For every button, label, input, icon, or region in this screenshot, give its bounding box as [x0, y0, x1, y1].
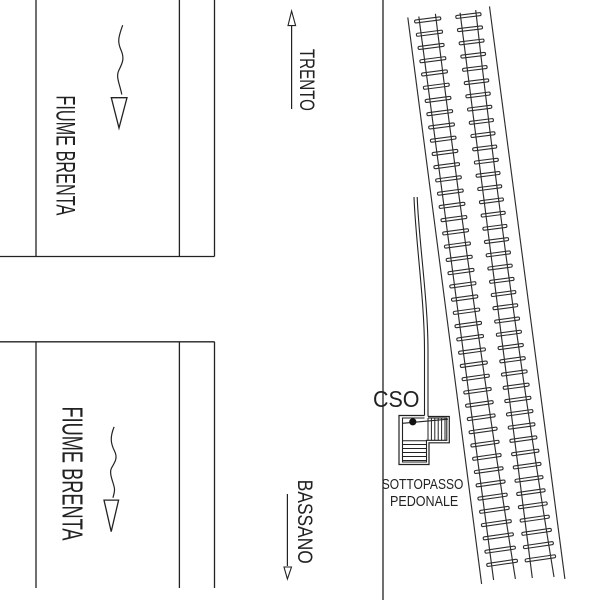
svg-text:FIUME BRENTA: FIUME BRENTA — [51, 95, 81, 215]
svg-text:TRENTO: TRENTO — [295, 49, 318, 111]
svg-text:BASSANO: BASSANO — [293, 480, 316, 564]
svg-text:CSO: CSO — [373, 386, 420, 412]
svg-text:PEDONALE: PEDONALE — [390, 493, 458, 510]
svg-text:SOTTOPASSO: SOTTOPASSO — [382, 476, 464, 493]
svg-text:FIUME BRENTA: FIUME BRENTA — [55, 407, 87, 541]
